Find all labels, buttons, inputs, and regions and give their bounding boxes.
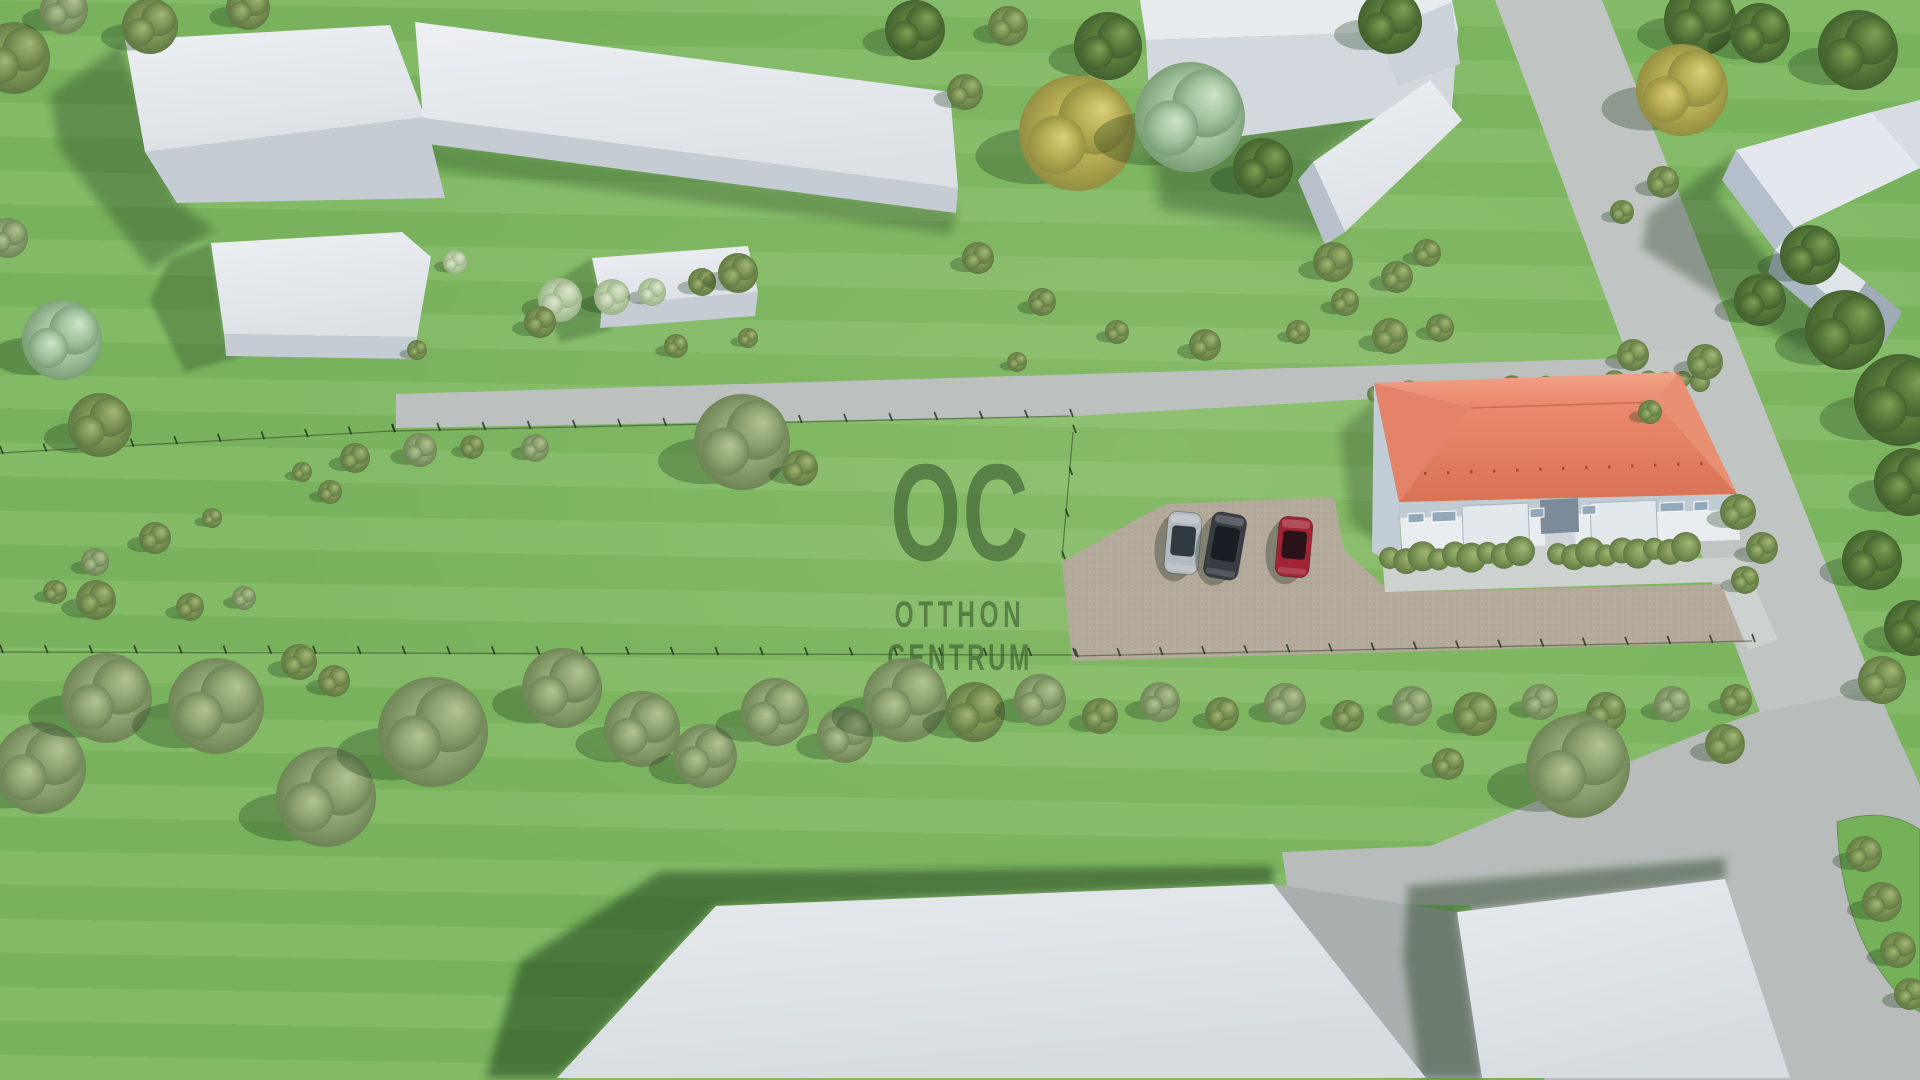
tree-crown-lobe [964, 253, 980, 269]
tree-crown-lobe [640, 288, 654, 302]
bush [451, 435, 484, 459]
bush [950, 242, 994, 274]
tree-crown-lobe [869, 687, 911, 729]
bush [195, 508, 223, 528]
bush [400, 340, 428, 360]
bush [1708, 684, 1752, 716]
tree-crown-lobe [1143, 101, 1198, 156]
tree-crown-lobe [1018, 692, 1044, 718]
bush [628, 278, 667, 306]
tree-crown-lobe [1534, 750, 1586, 802]
tree-crown-lobe [1267, 698, 1288, 719]
tree-crown-lobe [1009, 359, 1019, 369]
bush [1359, 318, 1409, 354]
bush [268, 644, 318, 680]
tree-crown-lobe [721, 267, 741, 287]
tree [0, 218, 28, 258]
tree-crown-lobe [1723, 507, 1741, 525]
tree-crown-lobe [1079, 36, 1113, 70]
tree [101, 0, 178, 54]
tree-crown-lobe [1191, 340, 1207, 356]
tree-crown-lobe [1708, 738, 1728, 758]
tree-crown-lobe [1428, 324, 1442, 338]
tree-crown-lobe [69, 685, 114, 730]
tree-crown-lobe [528, 676, 568, 716]
bush [1867, 932, 1917, 968]
tree-crown-lobe [1811, 318, 1851, 358]
tree-crown-lobe [597, 292, 615, 310]
bush [1635, 166, 1679, 198]
tree [337, 677, 488, 787]
bush [434, 250, 467, 274]
tree-crown-lobe [284, 782, 334, 832]
tree-crown-lobe [1, 754, 47, 800]
bush [390, 433, 437, 467]
bush [731, 328, 759, 348]
tree-crown-lobe [1525, 697, 1543, 715]
tree-crown-lobe [1316, 256, 1336, 276]
bush [512, 306, 556, 338]
tree-crown-lobe [1143, 696, 1163, 716]
tree [1847, 882, 1902, 922]
tree [1602, 44, 1729, 136]
tree [132, 658, 264, 754]
tree-crown-lobe [1395, 700, 1415, 720]
bush [1420, 748, 1464, 780]
tree-crown-lobe [44, 3, 68, 27]
tree-crown-lobe [234, 594, 246, 606]
tree-crown-lobe [1383, 272, 1399, 288]
tree-crown-lobe [1612, 208, 1624, 220]
tree-crown-lobe [1847, 551, 1877, 581]
tree [61, 580, 116, 620]
tree-crown-lobe [204, 515, 214, 525]
bush [1601, 200, 1634, 224]
tree-crown-lobe [73, 415, 105, 447]
bush [1096, 320, 1129, 344]
tree [210, 0, 271, 30]
bush [309, 480, 342, 504]
bush [1509, 684, 1559, 720]
tree-crown-lobe [386, 716, 441, 771]
tree [1248, 683, 1306, 725]
tree-crown-lobe [141, 533, 157, 549]
tree [995, 674, 1067, 726]
tree-crown-lobe [1363, 12, 1395, 44]
tree-crown-lobe [406, 445, 423, 462]
tree-crown-lobe [284, 657, 302, 675]
tree [716, 678, 810, 746]
tree [1487, 714, 1630, 818]
tree [492, 648, 602, 728]
bush [329, 443, 370, 473]
tree-crown-lobe [991, 20, 1011, 40]
bush [1018, 288, 1057, 316]
tree-crown-lobe [79, 594, 99, 614]
tree [1863, 600, 1920, 656]
bush [1069, 698, 1119, 734]
tree-crown-lobe [1722, 695, 1738, 711]
bush [655, 334, 688, 358]
tree [1788, 10, 1898, 90]
tree [1690, 724, 1745, 764]
tree-crown-lobe [1643, 76, 1689, 122]
bush [1321, 288, 1360, 316]
tree-crown-lobe [1107, 328, 1119, 340]
tree [1849, 448, 1920, 516]
bush [1000, 352, 1028, 372]
tree-crown-lobe [1333, 298, 1347, 312]
tree [1334, 0, 1422, 54]
bush [1882, 978, 1920, 1010]
tree-crown-lobe [1208, 709, 1225, 726]
bush [223, 586, 256, 610]
scene-flora-layer [0, 0, 1920, 1080]
bush [1416, 314, 1455, 342]
tree-crown-lobe [1862, 673, 1886, 697]
tree-crown-lobe [126, 18, 154, 46]
bush [1403, 239, 1442, 267]
tree-crown-lobe [409, 347, 419, 357]
tree-crown-lobe [1888, 620, 1916, 648]
tree-crown-lobe [785, 463, 803, 481]
bush [1277, 320, 1310, 344]
tree [1377, 686, 1432, 726]
tree [973, 6, 1028, 46]
tree [1125, 682, 1180, 722]
tree-crown-lobe [1085, 711, 1103, 729]
tree-crown-lobe [1733, 576, 1747, 590]
tree-crown-lobe [1288, 328, 1300, 340]
tree-crown-lobe [1456, 707, 1478, 729]
tree-crown-lobe [678, 746, 710, 778]
tree-crown-lobe [1334, 711, 1350, 727]
tree-crown-lobe [294, 469, 304, 479]
bush [166, 593, 205, 621]
bush [1734, 532, 1778, 564]
tree-crown-lobe [1824, 38, 1864, 78]
bush [1320, 700, 1364, 732]
tree-crown-lobe [1785, 246, 1815, 276]
tree-crown-lobe [701, 428, 749, 476]
bush [1674, 344, 1724, 380]
tree-crown-lobe [1748, 543, 1764, 559]
tree [1840, 656, 1906, 704]
tree-crown-lobe [342, 454, 357, 469]
tree [1715, 274, 1787, 326]
tree-crown-lobe [229, 1, 251, 23]
tree-crown-lobe [1690, 357, 1708, 375]
tree-crown-lobe [1619, 350, 1635, 366]
tree-crown-lobe [1849, 849, 1867, 867]
tree-crown-lobe [746, 702, 780, 736]
bush [1605, 339, 1649, 371]
tree-crown-lobe [1640, 408, 1652, 420]
tree-crown-lobe [1028, 116, 1086, 174]
bush [71, 548, 110, 576]
tree-crown-lobe [1735, 24, 1765, 54]
tree-crown-lobe [178, 603, 192, 617]
tree-crown-lobe [1434, 759, 1450, 775]
bush [285, 462, 313, 482]
tree [1820, 530, 1903, 590]
tree [1775, 290, 1885, 370]
tree-crown-lobe [445, 258, 457, 270]
tree-crown-lobe [462, 443, 474, 455]
tree [0, 22, 50, 94]
tree-crown-lobe [1415, 249, 1429, 263]
tree [1298, 242, 1353, 282]
tree-crown-lobe [1030, 298, 1044, 312]
tree-crown-lobe [610, 718, 648, 756]
tree [1049, 12, 1143, 80]
bush [934, 74, 984, 110]
bush [1177, 329, 1221, 361]
bush [1833, 836, 1883, 872]
bush [581, 279, 631, 315]
tree-crown-lobe [1879, 472, 1913, 506]
bush [1641, 686, 1691, 722]
tree-crown-lobe [1649, 177, 1665, 193]
tree-crown-lobe [1238, 159, 1268, 189]
tree-crown-lobe [890, 21, 920, 51]
tree-crown-lobe [950, 703, 980, 733]
tree-crown-lobe [1865, 896, 1885, 916]
tree-crown-lobe [1375, 331, 1393, 349]
tree [0, 300, 102, 380]
tree-crown-lobe [320, 676, 336, 692]
tree-crown-lobe [690, 278, 704, 292]
aerial-render-scene: OC OTTHON CENTRUM [0, 0, 1920, 1080]
tree [44, 393, 132, 457]
tree-crown-lobe [1861, 386, 1907, 432]
tree-crown-lobe [1896, 989, 1912, 1005]
bush [511, 434, 550, 462]
tree-crown-lobe [740, 335, 750, 345]
tree-crown-lobe [1883, 945, 1901, 963]
bush [127, 522, 171, 554]
tree [863, 0, 946, 60]
bush [1369, 261, 1413, 293]
bush [1707, 494, 1757, 530]
bush [1629, 400, 1662, 424]
tree-crown-lobe [950, 87, 968, 105]
tree-crown-lobe [523, 444, 537, 458]
bush [1192, 697, 1239, 731]
tree [22, 0, 88, 34]
bush [34, 580, 67, 604]
tree-crown-lobe [83, 558, 97, 572]
tree [1437, 692, 1498, 736]
tree-crown-lobe [28, 328, 68, 368]
tree-crown-lobe [1669, 9, 1705, 45]
tree-crown-lobe [320, 488, 332, 500]
tree-crown-lobe [1738, 292, 1764, 318]
bush [1721, 566, 1760, 594]
tree-crown-lobe [526, 317, 542, 333]
tree-crown-lobe [1657, 699, 1675, 717]
tree-crown-lobe [175, 692, 223, 740]
tree-crown-lobe [666, 342, 678, 354]
tree-crown-lobe [45, 588, 57, 600]
